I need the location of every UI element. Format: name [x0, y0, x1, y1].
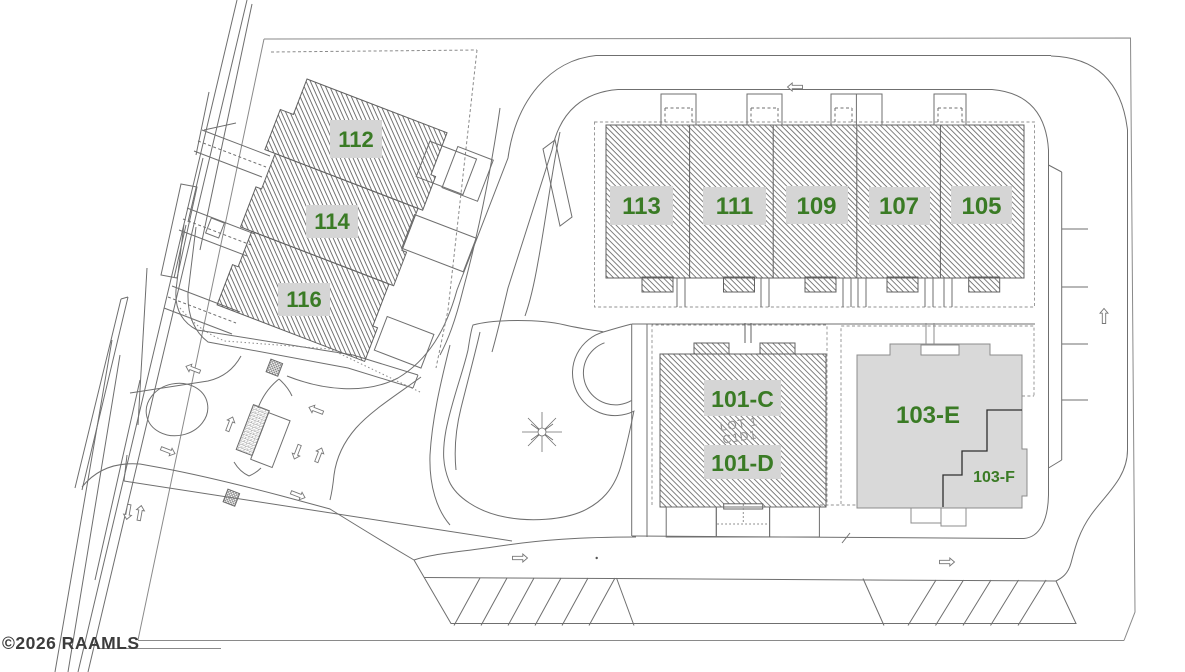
svg-text:109: 109	[796, 193, 836, 220]
svg-text:103-E: 103-E	[896, 402, 960, 429]
svg-text:113: 113	[622, 193, 661, 220]
svg-text:111: 111	[716, 193, 753, 220]
svg-text:103-F: 103-F	[973, 469, 1015, 486]
svg-text:101-D: 101-D	[711, 450, 774, 476]
svg-text:©2026 RAAMLS: ©2026 RAAMLS	[2, 633, 140, 653]
svg-text:114: 114	[314, 209, 350, 234]
svg-text:105: 105	[961, 193, 1001, 220]
svg-text:112: 112	[338, 127, 374, 152]
svg-text:101-C: 101-C	[711, 386, 774, 412]
svg-text:116: 116	[286, 287, 322, 312]
svg-text:107: 107	[879, 193, 919, 220]
